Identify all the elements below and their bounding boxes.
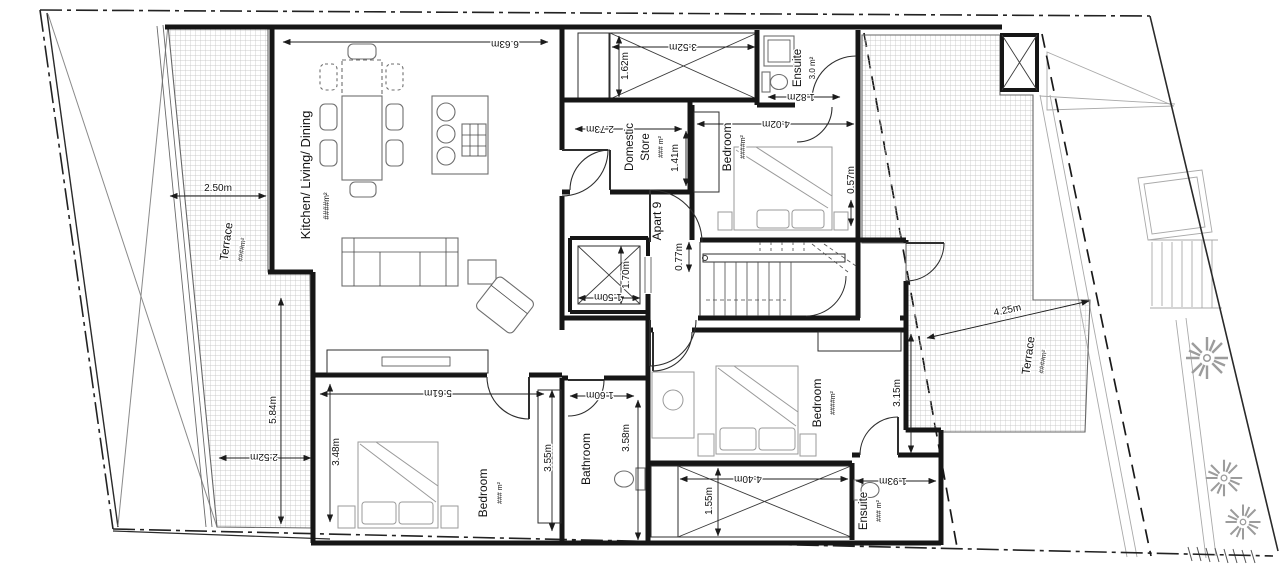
door-bedroom-left bbox=[487, 377, 529, 419]
dim-lift-width: 1.50m bbox=[594, 291, 622, 302]
dim-bedroom-top-gap: 0.57m bbox=[846, 166, 857, 194]
dim-bedroom-top-width: 4.02m bbox=[762, 118, 790, 129]
room-area-store: ### m² bbox=[658, 135, 665, 157]
dim-bedroom-left-depth: 3.48m bbox=[331, 438, 342, 466]
room-area-kitchen: ####m² bbox=[322, 192, 331, 219]
lift-door bbox=[645, 257, 651, 293]
dim-ensuite-bottom-width: 1.93m bbox=[879, 475, 907, 486]
door-kitchen-lobby bbox=[562, 150, 608, 196]
dim-ensuite-top-width: 1.82m bbox=[787, 91, 815, 102]
floor-plan-page: Kitchen/ Living/ Dining ####m² Terrace #… bbox=[0, 0, 1280, 569]
room-area-bedroom-top: ####m² bbox=[740, 134, 747, 158]
dim-bathroom-width: 1.60m bbox=[586, 389, 614, 400]
dim-bedroom-left-depth2: 3.55m bbox=[543, 444, 554, 472]
dim-terrace-left-length: 5.84m bbox=[268, 396, 279, 424]
bed-bedroom-left bbox=[338, 442, 458, 528]
room-label-bedroom-right: Bedroom bbox=[810, 379, 824, 428]
dim-bathroom-depth: 3.58m bbox=[621, 424, 632, 452]
door-hall-corridor bbox=[650, 320, 696, 366]
vanity-unit bbox=[652, 372, 694, 438]
closet-bedroom-left bbox=[327, 350, 488, 373]
door-ensuite-bottom bbox=[860, 417, 898, 455]
room-label-store-line1: Domestic bbox=[624, 123, 636, 171]
dim-lift-depth: 1.70m bbox=[621, 261, 632, 289]
shower-ensuite-top bbox=[764, 36, 794, 66]
bed-bedroom-top bbox=[718, 147, 848, 230]
plant-icon bbox=[1186, 337, 1261, 540]
room-label-bedroom-left: Bedroom bbox=[476, 469, 490, 518]
toilet-ensuite-top bbox=[762, 72, 788, 92]
dim-terrace-left-bottom: 2.52m bbox=[250, 451, 278, 462]
dim-void-top-depth: 1.62m bbox=[620, 52, 631, 80]
room-area-bedroom-right: ####m² bbox=[830, 390, 837, 414]
dim-kitchen-top: 6.63m bbox=[491, 38, 519, 49]
dim-store-width: 2.73m bbox=[586, 123, 614, 134]
door-bedroom-top bbox=[797, 107, 832, 142]
dining-table bbox=[320, 44, 403, 197]
dim-void-bottom-depth: 1.55m bbox=[704, 487, 715, 515]
floor-plan-drawing: Kitchen/ Living/ Dining ####m² Terrace #… bbox=[0, 0, 1280, 569]
room-label-bathroom: Bathroom bbox=[579, 433, 593, 485]
room-area-ensuite-bottom: ### m² bbox=[876, 499, 883, 521]
dim-void-top-width: 3.52m bbox=[669, 41, 697, 52]
room-label-bedroom-top: Bedroom bbox=[720, 123, 734, 172]
terrace-left-hatch bbox=[168, 25, 313, 528]
room-label-store-line2: Store bbox=[640, 133, 652, 161]
dim-bedroom-left-width: 5.61m bbox=[424, 387, 452, 398]
dim-void-bottom-width: 4.40m bbox=[734, 473, 762, 484]
furniture bbox=[320, 36, 879, 528]
room-area-bedroom-left: ### m² bbox=[497, 481, 504, 503]
room-area-ensuite-top: 3.0 m² bbox=[808, 56, 817, 79]
door-ensuite-top bbox=[812, 56, 856, 100]
wardrobe-bedroom-right bbox=[818, 332, 901, 351]
sofa bbox=[342, 238, 535, 335]
dim-bedroom-right-depth: 3.15m bbox=[892, 379, 903, 407]
apartment-label: Apart 9 bbox=[650, 201, 664, 240]
room-label-ensuite-top: Ensuite bbox=[792, 49, 804, 87]
bed-bedroom-right bbox=[698, 366, 816, 456]
room-label-kitchen: Kitchen/ Living/ Dining bbox=[298, 111, 313, 240]
stairs bbox=[700, 242, 856, 316]
toilet-bathroom bbox=[615, 468, 646, 490]
dim-terrace-left-top: 2.50m bbox=[204, 183, 232, 194]
room-label-ensuite-bottom: Ensuite bbox=[858, 492, 870, 530]
terrace-right-hatch bbox=[862, 35, 1090, 432]
kitchen-island bbox=[432, 96, 488, 174]
dim-hall-width: 0.77m bbox=[674, 243, 685, 271]
dim-store-depth: 1.41m bbox=[670, 144, 681, 172]
